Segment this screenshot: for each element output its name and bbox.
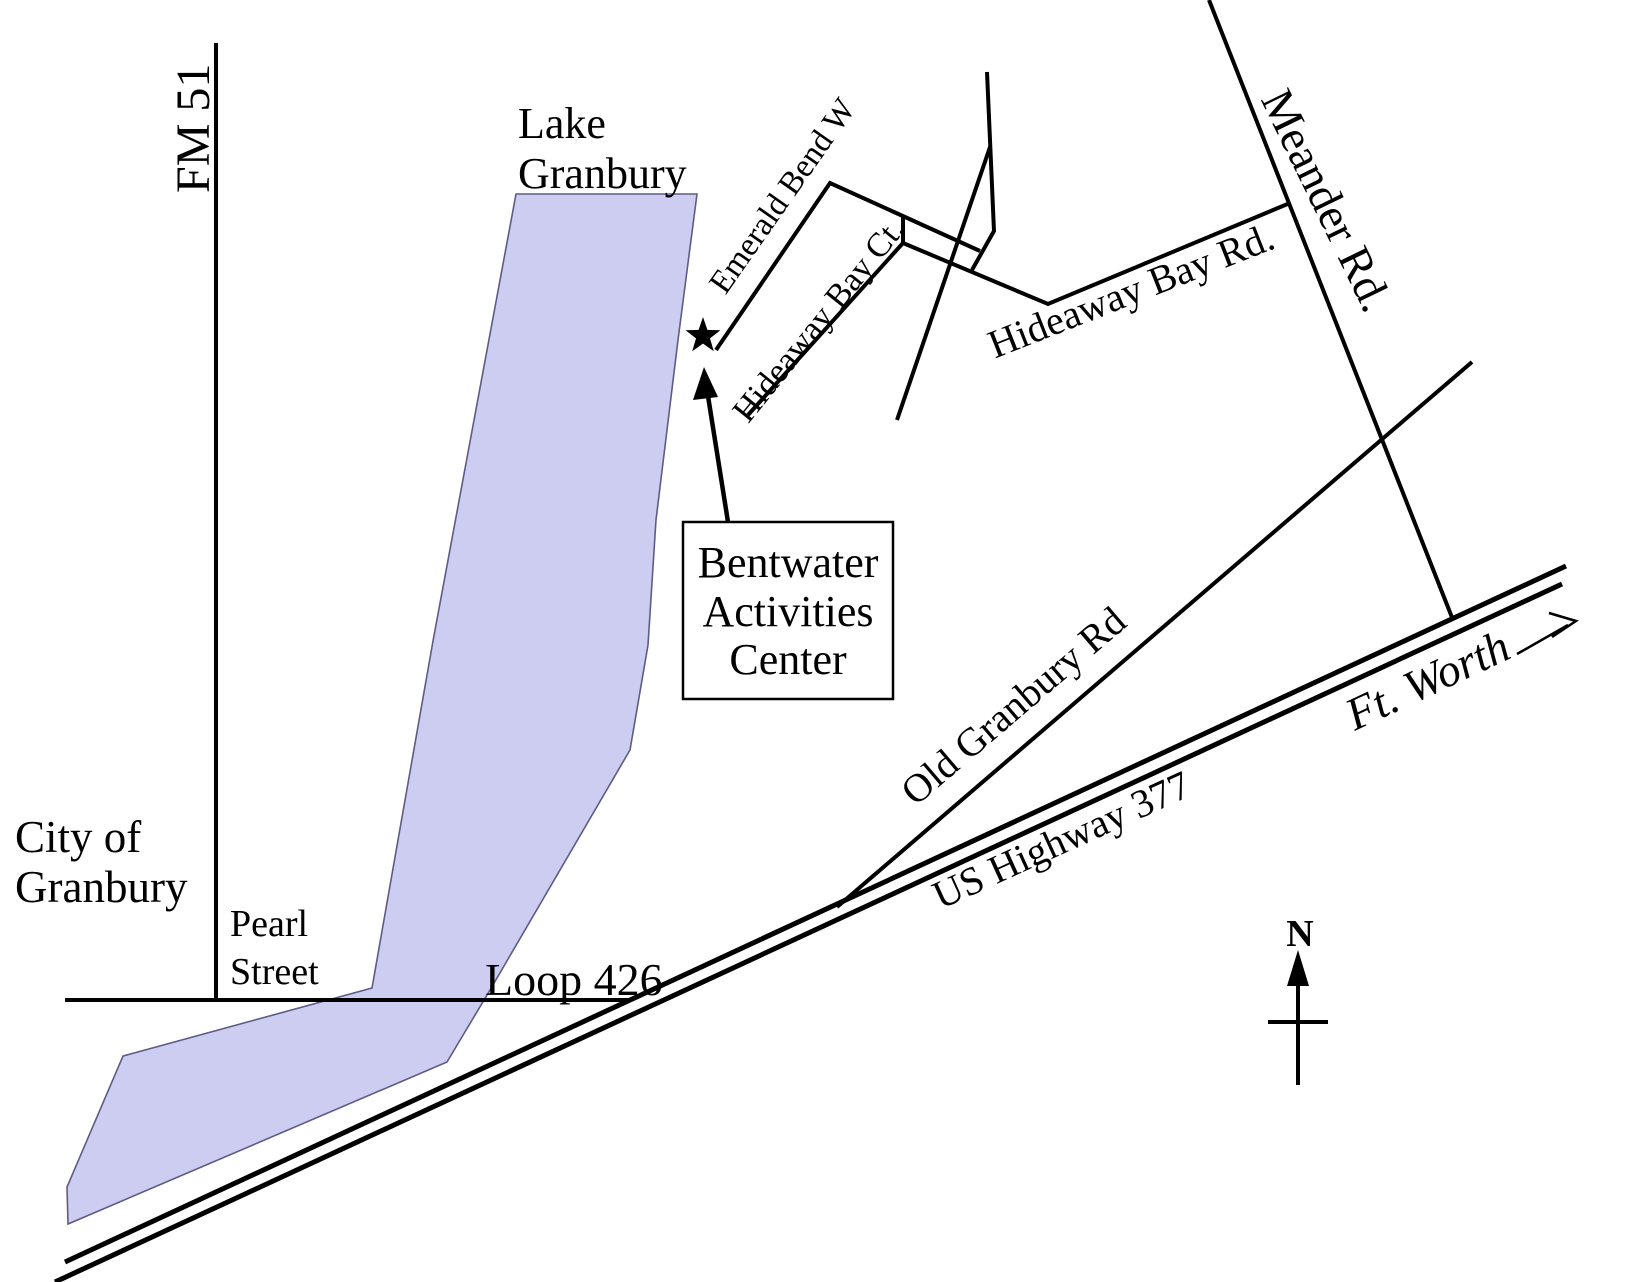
callout-line1: Bentwater <box>698 538 879 587</box>
callout-line2: Activities <box>702 587 873 636</box>
label-pearl-line1: Pearl <box>230 903 308 945</box>
label-lake-line1: Lake <box>518 99 606 148</box>
label-loop426: Loop 426 <box>485 954 663 1005</box>
compass-n-letter: N <box>1286 913 1313 955</box>
label-fm51: FM 51 <box>167 64 220 193</box>
label-lake-line2: Granbury <box>518 149 687 198</box>
label-city-line1: City of <box>15 812 141 862</box>
map-canvas: Bentwater Activities Center FM 51 Lake G… <box>0 0 1632 1282</box>
label-city-line2: Granbury <box>15 862 188 912</box>
callout-line3: Center <box>729 635 847 684</box>
label-pearl-line2: Street <box>230 951 319 993</box>
